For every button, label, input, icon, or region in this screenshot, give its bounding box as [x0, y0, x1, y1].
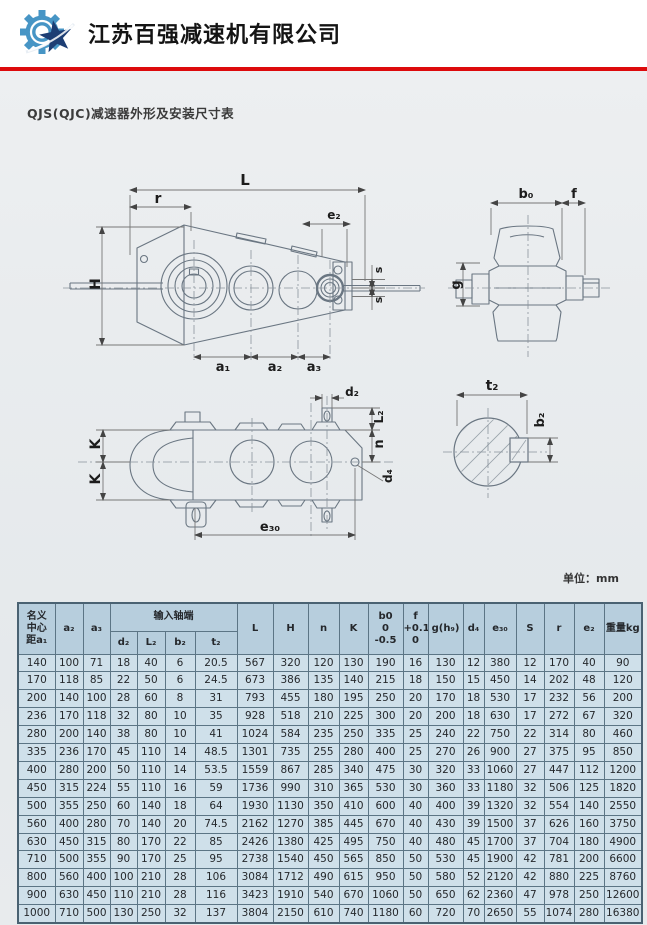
table-cell: 580	[428, 869, 463, 887]
table-cell: 18	[403, 672, 428, 690]
table-cell: 280	[574, 905, 604, 923]
table-cell: 2426	[237, 833, 273, 851]
col-header-a3: a₃	[83, 603, 110, 654]
table-cell: 335	[368, 726, 403, 744]
table-cell: 45	[463, 851, 484, 869]
table-cell: 38	[110, 726, 137, 744]
table-row: 2001401002860831793455180195250201701853…	[18, 690, 642, 708]
table-row: 7105003559017025952738154045056585050530…	[18, 851, 642, 869]
table-cell: 120	[308, 654, 339, 672]
table-cell: 455	[273, 690, 308, 708]
table-cell: 300	[368, 708, 403, 726]
table-cell: 554	[544, 797, 574, 815]
table-cell: 12	[516, 654, 544, 672]
table-cell: 95	[574, 744, 604, 762]
table-cell: 90	[110, 851, 137, 869]
gear-star-logo	[16, 4, 78, 62]
table-cell: 2150	[273, 905, 308, 923]
table-cell: 22	[110, 672, 137, 690]
dim-label-b2: b₂	[533, 413, 548, 428]
dim-label-t2: t₂	[486, 378, 499, 394]
table-cell: 375	[544, 744, 574, 762]
table-cell: 255	[308, 744, 339, 762]
table-cell: 720	[428, 905, 463, 923]
table-cell: 18	[463, 690, 484, 708]
table-row: 5003552506014018641930113035041060040400…	[18, 797, 642, 815]
table-cell: 70	[463, 905, 484, 923]
table-cell: 350	[308, 797, 339, 815]
sheet-title: QJS(QJC)减速器外形及安装尺寸表	[27, 103, 234, 122]
table-cell: 781	[544, 851, 574, 869]
table-cell: 62	[463, 887, 484, 905]
table-cell: 39	[463, 797, 484, 815]
table-cell: 8760	[604, 869, 642, 887]
table-cell: 460	[604, 726, 642, 744]
table-cell: 447	[544, 761, 574, 779]
table-cell: 27	[516, 744, 544, 762]
table-cell: 500	[83, 905, 110, 923]
table-cell: 630	[18, 833, 55, 851]
table-cell: 320	[273, 654, 308, 672]
dim-label-e30: e₃₀	[260, 520, 281, 535]
col-header-L: L	[237, 603, 273, 654]
table-cell: 160	[574, 815, 604, 833]
table-cell: 202	[544, 672, 574, 690]
table-cell: 867	[273, 761, 308, 779]
table-cell: 100	[83, 690, 110, 708]
table-cell: 64	[195, 797, 237, 815]
table-cell: 1060	[484, 761, 516, 779]
table-cell: 48	[574, 672, 604, 690]
table-cell: 450	[484, 672, 516, 690]
col-header-d4: d₄	[463, 603, 484, 654]
table-cell: 20	[165, 815, 195, 833]
dim-label-g: g	[449, 280, 464, 289]
table-cell: 26	[463, 744, 484, 762]
table-cell: 100	[55, 654, 83, 672]
table-cell: 33	[463, 779, 484, 797]
table-cell: 500	[18, 797, 55, 815]
table-cell: 55	[516, 905, 544, 923]
dimension-table: 名义 中心 距a₁ a₂ a₃ 输入轴端 L H n K b0 0 -0.5 f…	[17, 602, 643, 924]
table-cell: 14	[165, 761, 195, 779]
table-cell: 1380	[273, 833, 308, 851]
table-cell: 1700	[484, 833, 516, 851]
table-cell: 24.5	[195, 672, 237, 690]
table-cell: 6	[165, 672, 195, 690]
table-cell: 170	[428, 690, 463, 708]
table-cell: 140	[18, 654, 55, 672]
table-cell: 56	[574, 690, 604, 708]
site-header: 江苏百强减速机有限公司	[0, 0, 647, 67]
table-cell: 335	[18, 744, 55, 762]
table-cell: 140	[574, 797, 604, 815]
table-cell: 225	[574, 869, 604, 887]
table-cell: 74.5	[195, 815, 237, 833]
table-cell: 320	[604, 708, 642, 726]
table-cell: 35	[195, 708, 237, 726]
table-cell: 125	[574, 779, 604, 797]
table-cell: 1930	[237, 797, 273, 815]
table-cell: 170	[55, 708, 83, 726]
table-cell: 400	[55, 815, 83, 833]
table-cell: 615	[339, 869, 368, 887]
table-row: 2802001403880104110245842352503352524022…	[18, 726, 642, 744]
table-cell: 626	[544, 815, 574, 833]
side-view-drawing: L r e₂ H s s a₁ a₂ a₃	[58, 155, 428, 379]
table-cell: 137	[195, 905, 237, 923]
table-row: 9006304501102102811634231910540670106050…	[18, 887, 642, 905]
col-header-weight: 重量kg	[604, 603, 642, 654]
table-cell: 240	[428, 726, 463, 744]
table-cell: 47	[516, 887, 544, 905]
table-cell: 27	[516, 761, 544, 779]
table-cell: 430	[428, 815, 463, 833]
dim-label-K2: K	[88, 472, 104, 484]
table-cell: 50	[137, 672, 165, 690]
table-cell: 10	[165, 708, 195, 726]
table-cell: 280	[339, 744, 368, 762]
table-cell: 480	[428, 833, 463, 851]
table-cell: 2738	[237, 851, 273, 869]
table-cell: 53.5	[195, 761, 237, 779]
table-cell: 50	[403, 869, 428, 887]
table-cell: 650	[428, 887, 463, 905]
table-cell: 315	[55, 779, 83, 797]
table-cell: 530	[428, 851, 463, 869]
table-cell: 1559	[237, 761, 273, 779]
table-cell: 530	[368, 779, 403, 797]
table-cell: 250	[574, 887, 604, 905]
table-row: 560400280701402074.521621270385445670404…	[18, 815, 642, 833]
table-cell: 400	[18, 761, 55, 779]
table-cell: 140	[137, 797, 165, 815]
table-cell: 1270	[273, 815, 308, 833]
dim-label-s1: s	[372, 266, 385, 273]
table-cell: 1736	[237, 779, 273, 797]
table-cell: 50	[403, 887, 428, 905]
table-cell: 365	[339, 779, 368, 797]
table-cell: 15	[463, 672, 484, 690]
table-cell: 60	[403, 905, 428, 923]
shaft-section-drawing: t₂ b₂	[435, 378, 625, 517]
table-row: 335236170451101448.513017352552804002527…	[18, 744, 642, 762]
table-cell: 225	[339, 708, 368, 726]
table-cell: 170	[83, 744, 110, 762]
table-cell: 8	[165, 690, 195, 708]
col-header-input-shaft-group: 输入轴端	[110, 603, 237, 631]
col-header-r: r	[544, 603, 574, 654]
table-cell: 1712	[273, 869, 308, 887]
table-cell: 110	[137, 761, 165, 779]
table-cell: 116	[195, 887, 237, 905]
table-cell: 40	[403, 815, 428, 833]
table-cell: 200	[604, 690, 642, 708]
col-header-f: f +0.1 0	[403, 603, 428, 654]
table-cell: 210	[308, 708, 339, 726]
table-cell: 670	[339, 887, 368, 905]
table-cell: 400	[83, 869, 110, 887]
table-cell: 495	[339, 833, 368, 851]
table-cell: 360	[428, 779, 463, 797]
col-header-d2: d₂	[110, 631, 137, 654]
table-cell: 560	[55, 869, 83, 887]
table-cell: 285	[308, 761, 339, 779]
table-cell: 1000	[18, 905, 55, 923]
table-cell: 110	[137, 779, 165, 797]
table-cell: 2650	[484, 905, 516, 923]
table-cell: 17	[516, 690, 544, 708]
table-cell: 16380	[604, 905, 642, 923]
dim-label-f: f	[571, 187, 577, 202]
table-cell: 170	[544, 654, 574, 672]
table-cell: 320	[428, 761, 463, 779]
table-cell: 450	[18, 779, 55, 797]
table-cell: 28	[165, 869, 195, 887]
table-cell: 25	[165, 851, 195, 869]
table-cell: 215	[368, 672, 403, 690]
table-cell: 1180	[368, 905, 403, 923]
table-cell: 450	[83, 887, 110, 905]
table-cell: 25	[403, 744, 428, 762]
table-cell: 1180	[484, 779, 516, 797]
table-cell: 16	[403, 654, 428, 672]
dim-label-s2: s	[372, 296, 385, 303]
dim-label-r: r	[155, 191, 162, 207]
table-cell: 120	[604, 672, 642, 690]
table-cell: 1130	[273, 797, 308, 815]
table-row: 140100711840620.556732012013019016130123…	[18, 654, 642, 672]
dim-label-n: n	[372, 439, 387, 448]
table-cell: 518	[273, 708, 308, 726]
table-cell: 80	[110, 833, 137, 851]
table-cell: 450	[308, 851, 339, 869]
table-cell: 250	[368, 690, 403, 708]
table-cell: 210	[137, 887, 165, 905]
table-cell: 450	[55, 833, 83, 851]
table-cell: 880	[544, 869, 574, 887]
end-view-drawing: b₀ f g	[440, 175, 640, 369]
table-cell: 630	[484, 708, 516, 726]
table-cell: 16	[165, 779, 195, 797]
table-cell: 45	[110, 744, 137, 762]
table-cell: 3804	[237, 905, 273, 923]
table-cell: 500	[55, 851, 83, 869]
dim-label-K1: K	[88, 437, 104, 449]
table-cell: 70	[110, 815, 137, 833]
table-cell: 112	[574, 761, 604, 779]
table-cell: 530	[484, 690, 516, 708]
table-row: 2361701183280103592851821022530020200186…	[18, 708, 642, 726]
table-cell: 385	[308, 815, 339, 833]
table-cell: 22	[463, 726, 484, 744]
table-cell: 272	[544, 708, 574, 726]
dim-label-d2: d₂	[345, 385, 359, 399]
table-cell: 610	[308, 905, 339, 923]
table-cell: 475	[368, 761, 403, 779]
table-cell: 565	[339, 851, 368, 869]
table-cell: 28	[110, 690, 137, 708]
table-cell: 1320	[484, 797, 516, 815]
table-row: 8005604001002102810630841712490615950505…	[18, 869, 642, 887]
table-cell: 340	[339, 761, 368, 779]
table-cell: 900	[18, 887, 55, 905]
table-cell: 425	[308, 833, 339, 851]
table-cell: 18	[110, 654, 137, 672]
table-cell: 314	[544, 726, 574, 744]
table-cell: 37	[516, 833, 544, 851]
col-header-nominal-center: 名义 中心 距a₁	[18, 603, 55, 654]
table-cell: 1301	[237, 744, 273, 762]
table-cell: 71	[83, 654, 110, 672]
table-cell: 280	[55, 761, 83, 779]
table-cell: 22	[165, 833, 195, 851]
table-cell: 232	[544, 690, 574, 708]
table-cell: 750	[484, 726, 516, 744]
table-cell: 32	[110, 708, 137, 726]
col-header-a2: a₂	[55, 603, 83, 654]
col-header-t2: t₂	[195, 631, 237, 654]
table-cell: 236	[55, 744, 83, 762]
table-cell: 60	[110, 797, 137, 815]
table-cell: 40	[403, 797, 428, 815]
table-cell: 140	[55, 690, 83, 708]
table-cell: 315	[83, 833, 110, 851]
table-cell: 630	[55, 887, 83, 905]
table-cell: 195	[339, 690, 368, 708]
table-cell: 490	[308, 869, 339, 887]
table-cell: 1500	[484, 815, 516, 833]
table-cell: 3423	[237, 887, 273, 905]
table-cell: 1900	[484, 851, 516, 869]
table-cell: 380	[484, 654, 516, 672]
dim-label-L: L	[240, 171, 250, 189]
table-cell: 400	[368, 744, 403, 762]
col-header-S: S	[516, 603, 544, 654]
table-cell: 32	[516, 779, 544, 797]
table-cell: 850	[604, 744, 642, 762]
table-cell: 17	[516, 708, 544, 726]
table-cell: 928	[237, 708, 273, 726]
table-cell: 600	[368, 797, 403, 815]
table-cell: 710	[55, 905, 83, 923]
table-cell: 2360	[484, 887, 516, 905]
table-cell: 40	[137, 654, 165, 672]
table-cell: 30	[403, 779, 428, 797]
col-header-g: g(h₉)	[428, 603, 463, 654]
table-cell: 20	[403, 708, 428, 726]
table-cell: 584	[273, 726, 308, 744]
table-cell: 200	[428, 708, 463, 726]
table-cell: 18	[463, 708, 484, 726]
table-cell: 250	[137, 905, 165, 923]
table-cell: 250	[339, 726, 368, 744]
table-cell: 37	[516, 815, 544, 833]
dim-label-L2: L₂	[372, 411, 386, 424]
table-cell: 28	[165, 887, 195, 905]
dim-label-H: H	[88, 278, 104, 290]
table-cell: 85	[195, 833, 237, 851]
dim-label-b0: b₀	[519, 187, 534, 202]
table-cell: 4900	[604, 833, 642, 851]
table-cell: 80	[574, 726, 604, 744]
table-cell: 150	[428, 672, 463, 690]
table-cell: 235	[308, 726, 339, 744]
table-cell: 567	[237, 654, 273, 672]
table-cell: 140	[83, 726, 110, 744]
table-cell: 45	[463, 833, 484, 851]
table-cell: 95	[195, 851, 237, 869]
table-cell: 32	[516, 797, 544, 815]
table-cell: 978	[544, 887, 574, 905]
table-cell: 130	[110, 905, 137, 923]
company-name[interactable]: 江苏百强减速机有限公司	[88, 17, 341, 49]
table-row: 4503152245511016591736990310365530303603…	[18, 779, 642, 797]
table-row: 6304503158017022852426138042549575040480…	[18, 833, 642, 851]
col-header-n: n	[308, 603, 339, 654]
col-header-b2: b₂	[165, 631, 195, 654]
table-cell: 33	[463, 761, 484, 779]
table-cell: 400	[428, 797, 463, 815]
table-cell: 55	[110, 779, 137, 797]
table-cell: 386	[273, 672, 308, 690]
table-cell: 6600	[604, 851, 642, 869]
table-cell: 170	[137, 833, 165, 851]
table-cell: 12	[463, 654, 484, 672]
table-cell: 850	[368, 851, 403, 869]
table-cell: 106	[195, 869, 237, 887]
col-header-K: K	[339, 603, 368, 654]
table-cell: 200	[83, 761, 110, 779]
table-cell: 42	[516, 869, 544, 887]
dim-label-a2: a₂	[268, 360, 282, 375]
table-cell: 310	[308, 779, 339, 797]
table-cell: 14	[516, 672, 544, 690]
table-cell: 740	[339, 905, 368, 923]
table-cell: 110	[110, 887, 137, 905]
table-cell: 80	[137, 726, 165, 744]
table-cell: 2550	[604, 797, 642, 815]
table-cell: 50	[110, 761, 137, 779]
table-cell: 6	[165, 654, 195, 672]
table-cell: 704	[544, 833, 574, 851]
table-cell: 355	[83, 851, 110, 869]
table-cell: 85	[83, 672, 110, 690]
table-cell: 750	[368, 833, 403, 851]
table-cell: 410	[339, 797, 368, 815]
table-cell: 190	[368, 654, 403, 672]
table-cell: 236	[18, 708, 55, 726]
table-cell: 30	[403, 761, 428, 779]
col-header-b0: b0 0 -0.5	[368, 603, 403, 654]
table-cell: 40	[403, 833, 428, 851]
table-cell: 2120	[484, 869, 516, 887]
table-row: 170118852250624.567338613514021518150154…	[18, 672, 642, 690]
table-cell: 110	[137, 744, 165, 762]
table-cell: 800	[18, 869, 55, 887]
table-cell: 118	[55, 672, 83, 690]
table-cell: 59	[195, 779, 237, 797]
table-cell: 200	[18, 690, 55, 708]
brand[interactable]: 江苏百强减速机有限公司	[16, 4, 341, 62]
table-cell: 1024	[237, 726, 273, 744]
table-row: 1000710500130250321373804215061074011806…	[18, 905, 642, 923]
table-cell: 1820	[604, 779, 642, 797]
table-cell: 2162	[237, 815, 273, 833]
table-cell: 41	[195, 726, 237, 744]
table-cell: 12600	[604, 887, 642, 905]
table-cell: 506	[544, 779, 574, 797]
